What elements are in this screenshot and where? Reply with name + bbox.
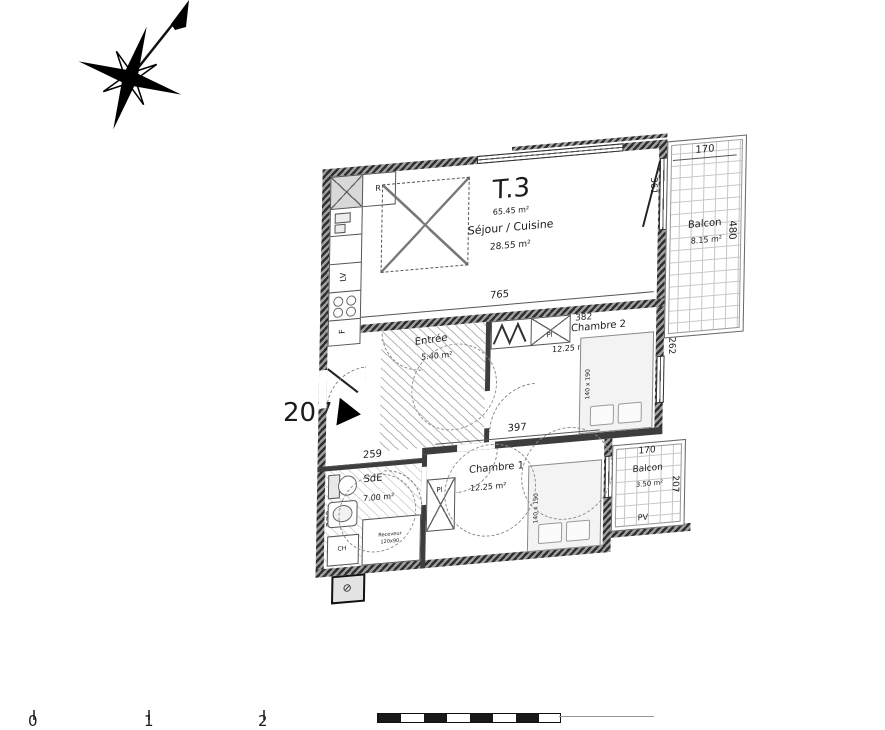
- scale-bar: 0 1 2: [0, 702, 885, 720]
- pillow: [538, 522, 562, 544]
- dim-sde-width: 259: [363, 449, 382, 461]
- window-chambre2: [656, 355, 665, 403]
- room-area-sejour: 28.55 m²: [490, 240, 531, 253]
- scale-bar-segment: [377, 713, 561, 723]
- room-name-sejour: Séjour / Cuisine: [468, 218, 554, 237]
- kitchen-corner-unit: [330, 174, 363, 210]
- scale-bar-line: [559, 716, 654, 717]
- scale-label-0: 0: [28, 712, 38, 730]
- dim-sejour-width: 765: [490, 290, 509, 302]
- pillow: [590, 404, 614, 426]
- north-arrow-icon: [171, 0, 189, 30]
- floor-plan: T.3 65.45 m² Séjour / Cuisine 28.55 m² 7…: [315, 132, 751, 612]
- compass-rose-icon: [72, 0, 207, 140]
- sink-basin: [335, 212, 351, 223]
- dim-sejour-door: 361: [648, 177, 657, 195]
- dim-balcon-nord-depth: 480: [726, 220, 736, 240]
- screen-label: PV: [638, 514, 648, 523]
- plan-title: T.3: [492, 174, 530, 203]
- dishwasher-label: LV: [340, 272, 348, 282]
- floor-plan-page: { "plan": { "title": "T.3", "total_area"…: [0, 0, 885, 720]
- scale-label-2: 2: [258, 712, 268, 730]
- hanging-rail-icon: [492, 319, 532, 349]
- closet-chambre2-label: Pl: [546, 332, 552, 340]
- pillow: [566, 520, 590, 542]
- oven-label: F: [339, 329, 347, 334]
- bed-chambre2-size: 140 x 190: [585, 369, 592, 400]
- closet-chambre2: [491, 318, 533, 350]
- water-heater-label: CH: [338, 546, 347, 553]
- dim-chambre2-window: 262: [666, 337, 675, 355]
- dim-chambre1-width: 397: [507, 423, 526, 435]
- sink-basin-2: [334, 224, 345, 234]
- pillow: [618, 402, 642, 424]
- closet-chambre1-label: Pl: [436, 487, 442, 495]
- dim-balcon-nord-width: 170: [695, 144, 714, 156]
- fridge-label: R: [375, 185, 381, 194]
- bed-chambre2: 140 x 190: [579, 331, 654, 434]
- dim-balcon-sud-width: 170: [638, 446, 655, 457]
- room-name-chambre2: Chambre 2: [571, 320, 626, 335]
- entrance-door-gap: [319, 370, 328, 409]
- total-area: 65.45 m²: [493, 206, 529, 217]
- scale-label-1: 1: [144, 712, 154, 730]
- dim-balcon-sud-depth: 207: [670, 475, 679, 493]
- table-symbol: [381, 177, 470, 273]
- shaft-icon: ⊘: [343, 582, 352, 594]
